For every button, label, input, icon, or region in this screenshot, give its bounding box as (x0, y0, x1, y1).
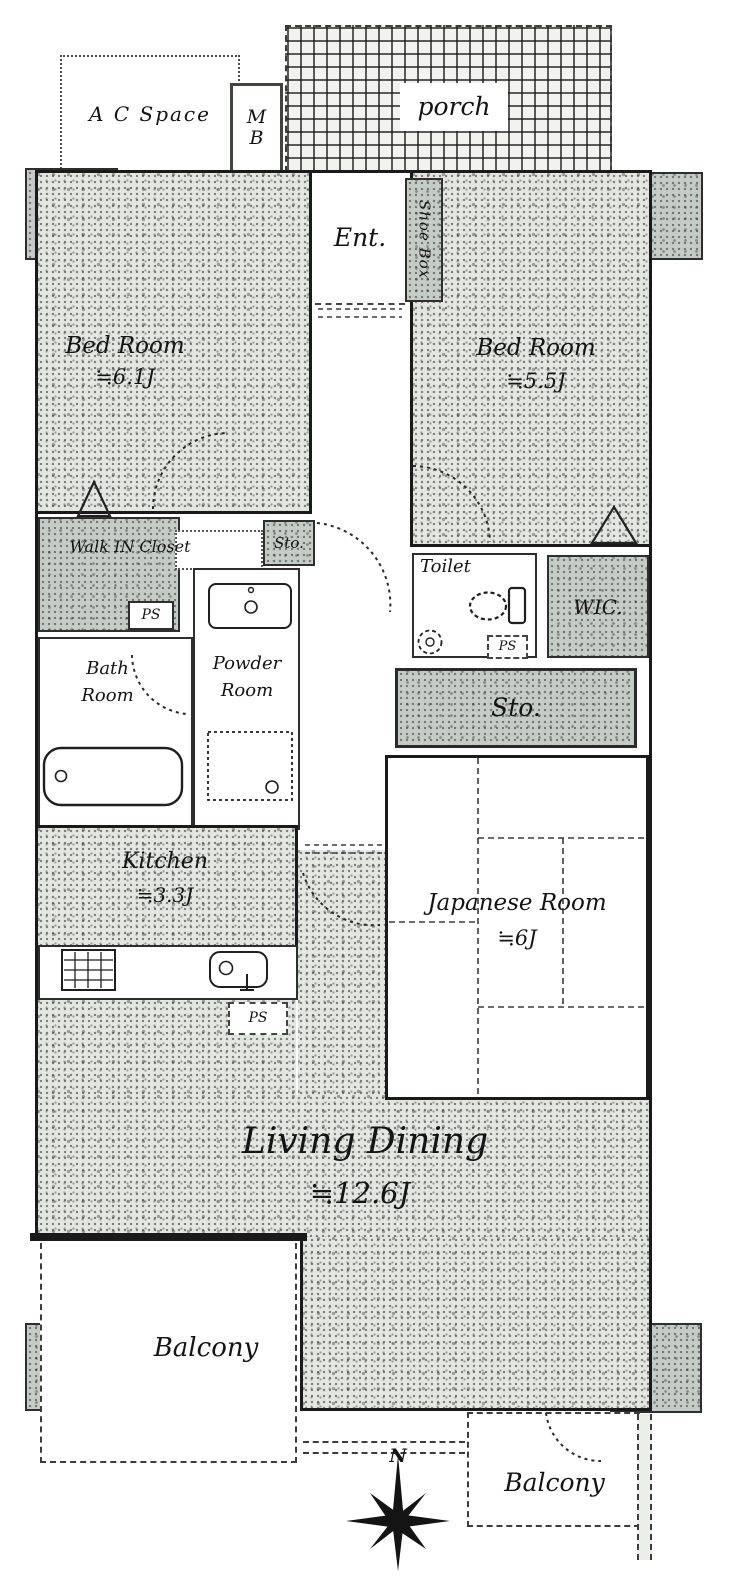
storage-large: Sto. (395, 668, 637, 748)
floor-plan: porch A C Space M B Ent. Shoe Box Sto. P… (0, 0, 741, 1578)
compass-rose-icon (346, 1455, 450, 1571)
meter-box: M B (230, 83, 283, 173)
japanese-room-name: Japanese Room (390, 891, 644, 916)
living-dining-name: Living Dining (170, 1122, 560, 1162)
bathroom-label-line1: Bath (45, 655, 170, 682)
powder-label-line1: Powder (197, 650, 297, 677)
storage-small: Sto. (263, 520, 315, 566)
living-dining-area-main (38, 1095, 649, 1237)
balcony-right-label: Balcony (472, 1469, 637, 1497)
bedroom2-name: Bed Room (436, 336, 636, 361)
storage-large-label: Sto. (491, 694, 541, 722)
shoe-box: Shoe Box (405, 178, 443, 302)
porch-label-chip: porch (400, 83, 508, 131)
meter-box-label-m: M (247, 107, 266, 128)
ps1-label: PS (141, 608, 160, 623)
living-dining-size: ≒12.6J (260, 1178, 460, 1210)
powder-label-line2: Room (197, 677, 297, 704)
kitchen-counter (38, 945, 298, 1000)
ps-box-2: PS (487, 635, 528, 659)
bathroom-label: Bath Room (45, 655, 170, 709)
balcony-left-label: Balcony (106, 1334, 306, 1363)
exterior-wall-strip (637, 1414, 652, 1560)
powder-room-label: Powder Room (197, 650, 297, 704)
bedroom1-name: Bed Room (40, 334, 210, 359)
living-dining-area-hall (298, 850, 385, 1097)
ps-box-3: PS (228, 1002, 288, 1035)
compass-north-label: N (383, 1446, 413, 1467)
ac-space-label: A C Space (89, 103, 211, 125)
shoe-box-label: Shoe Box (416, 200, 433, 279)
toilet-label: Toilet (420, 557, 471, 577)
ps3-label: PS (248, 1011, 267, 1026)
entrance-area: Ent. (315, 173, 405, 305)
wic-label: WIC. (573, 596, 622, 618)
ps2-label: PS (499, 640, 517, 654)
ac-space-box: A C Space (60, 55, 240, 173)
bathroom-label-line2: Room (45, 682, 170, 709)
porch-label: porch (417, 93, 490, 121)
wic-area: WIC. (547, 555, 649, 658)
kitchen-name: Kitchen (90, 850, 240, 874)
walk-in-closet-label: Walk IN Closet (30, 538, 230, 556)
ps-box-1: PS (128, 601, 174, 630)
bedroom1-size: ≒6.1J (40, 366, 210, 389)
japanese-room-size: ≒6J (390, 927, 644, 950)
storage-small-label: Sto. (274, 535, 304, 552)
bedroom2-size: ≒5.5J (436, 370, 636, 393)
kitchen-size: ≒3.3J (90, 884, 240, 906)
wall-balcony-left-top (30, 1233, 307, 1241)
unit-outline-lower (300, 1237, 652, 1411)
meter-box-label-b: B (250, 128, 264, 149)
entrance-label: Ent. (334, 224, 386, 252)
